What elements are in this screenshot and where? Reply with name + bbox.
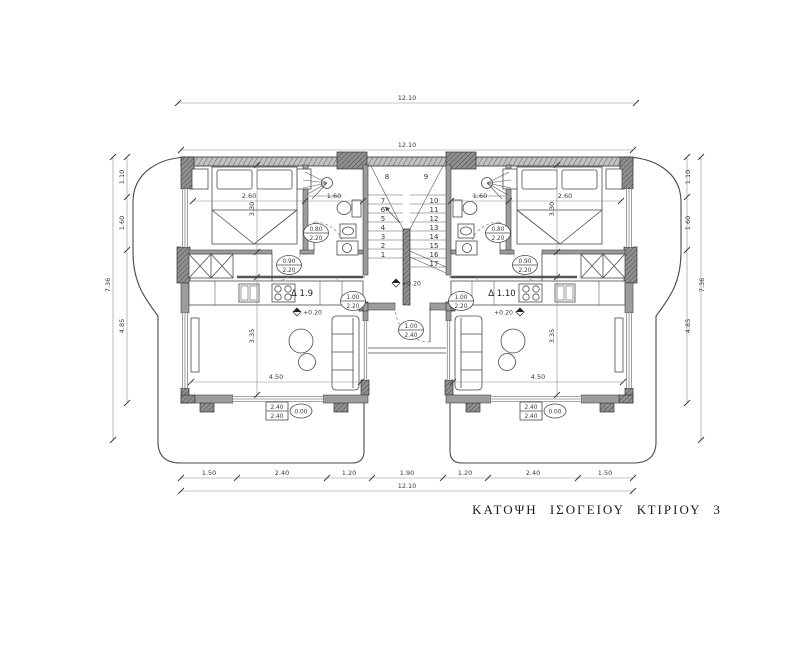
wall <box>500 250 514 254</box>
wall <box>363 165 368 275</box>
dim-bottom-seg: 1.50 <box>202 469 216 477</box>
door-label-height: 2.20 <box>347 304 360 310</box>
window-left-bedroom <box>181 189 189 247</box>
window-left-living <box>181 313 189 388</box>
apartment-label-left: Δ 1.9 <box>291 289 313 299</box>
dim-left-seg: 1.10 <box>118 170 126 184</box>
sofa <box>455 316 482 390</box>
window-right-living <box>625 313 633 388</box>
wall <box>446 165 451 275</box>
wc-tank <box>352 200 361 217</box>
kitchen-sink <box>239 284 259 302</box>
table <box>501 329 525 353</box>
stair-number: 9 <box>424 173 428 181</box>
dim-right-seg: 1.60 <box>684 216 692 230</box>
dim-left-total: 7.36 <box>104 278 112 292</box>
washing-machine <box>337 241 358 255</box>
window-right-bedroom <box>625 189 633 247</box>
dim-bottom-seg: 2.40 <box>526 469 540 477</box>
dim-bottom-seg: 1.20 <box>342 469 356 477</box>
dim-bath-width: 1.60 <box>473 192 487 200</box>
column <box>334 403 348 412</box>
dim-bedroom-width: 2.60 <box>242 192 256 200</box>
stair-number: 10 <box>430 197 439 205</box>
dim-bedroom-depth: 3.30 <box>548 202 556 216</box>
drawing-title: ΚΑΤΟΨΗ ΙΣΟΓΕΙΟΥ ΚΤΙΡΙΟΥ 3 <box>472 502 722 517</box>
dim-right-seg: 4.85 <box>684 319 692 333</box>
window-label-height: 2.40 <box>525 414 538 420</box>
column <box>600 403 614 412</box>
dim-bottom-total: 12.10 <box>398 482 417 490</box>
window-label-level: 0.00 <box>295 410 308 416</box>
table <box>299 354 316 371</box>
door-label-width: 0.80 <box>492 227 505 233</box>
dim-bath-width: 1.60 <box>327 192 341 200</box>
washing-machine <box>456 241 477 255</box>
stair-number: 2 <box>381 242 385 250</box>
window-size-labels: 2.40 2.40 0.00 2.40 2.40 0.00 <box>266 402 566 420</box>
nightstand <box>606 169 622 189</box>
dim-living-width: 4.50 <box>531 373 545 381</box>
door-label-width: 1.00 <box>455 295 468 301</box>
level-marker-right: +0.20 <box>494 308 524 317</box>
door-label-height: 2.20 <box>283 268 296 274</box>
stair-number: 14 <box>430 233 439 241</box>
door-label-entrance: 1.00 2.40 <box>399 321 424 340</box>
window-label-width: 2.40 <box>271 405 284 411</box>
stair-number: 7 <box>381 197 385 205</box>
sofa <box>332 316 359 390</box>
stair-number: 8 <box>385 173 389 181</box>
wall <box>189 250 272 254</box>
pillow <box>217 170 252 189</box>
door-label-bedroom-right: 0.90 2.20 <box>513 256 538 275</box>
dim-living-depth: 3.35 <box>548 329 556 343</box>
level-marker-vestibule: +0.20 <box>392 279 421 288</box>
column <box>466 403 480 412</box>
wardrobe-right <box>581 254 625 278</box>
dim-top-outer: 12.10 <box>398 94 417 102</box>
pillow <box>257 170 292 189</box>
wall <box>446 311 451 321</box>
kitchen-sink <box>555 284 575 302</box>
dim-bottom-seg: 1.20 <box>458 469 472 477</box>
dim-bottom-seg: 1.90 <box>400 469 414 477</box>
kitchen-left <box>189 281 363 305</box>
column <box>200 403 214 412</box>
wall <box>430 303 446 310</box>
door-label-height: 2.20 <box>519 268 532 274</box>
stair-number: 12 <box>430 215 439 223</box>
door-label-height: 2.40 <box>405 333 418 339</box>
stair-number: 11 <box>430 206 439 214</box>
dim-bottom-seg: 2.40 <box>275 469 289 477</box>
window-left-porchside <box>363 321 368 380</box>
door-label-width: 1.00 <box>347 295 360 301</box>
wc-bowl <box>463 202 477 215</box>
wall-block <box>619 395 633 403</box>
door-label-width: 0.80 <box>310 227 323 233</box>
floor-plan-canvas: 1 2 3 4 5 6 7 8 9 10 11 12 13 14 15 16 1… <box>0 0 800 654</box>
dim-left-seg: 1.60 <box>118 216 126 230</box>
stair-number: 5 <box>381 215 385 223</box>
window-label-height: 2.40 <box>271 414 284 420</box>
door-label-height: 2.20 <box>310 236 323 242</box>
pillow <box>562 170 597 189</box>
dim-right-total: 7.36 <box>698 278 706 292</box>
window-right-porchside <box>446 321 451 380</box>
top-wall <box>181 157 633 166</box>
bathroom-right <box>453 172 511 255</box>
dim-top-inner: 12.10 <box>398 141 417 149</box>
door-label-apartment-right: 1.00 2.20 <box>449 292 474 311</box>
table <box>289 329 313 353</box>
table <box>499 354 516 371</box>
pillow <box>522 170 557 189</box>
level-value: +0.20 <box>303 310 322 317</box>
stair-number: 1 <box>381 251 385 259</box>
window-label-level: 0.00 <box>549 410 562 416</box>
door-label-bath-left: 0.80 2.20 <box>304 224 329 243</box>
stair-number: 13 <box>430 224 439 232</box>
door-label-height: 2.20 <box>492 236 505 242</box>
apartment-label-right: Δ 1.10 <box>488 289 515 299</box>
stair-spine-wall <box>403 229 410 305</box>
stair-number: 17 <box>430 260 439 268</box>
nightstand <box>503 169 517 189</box>
dim-living-width: 4.50 <box>269 373 283 381</box>
wall <box>446 395 491 403</box>
wall-block <box>445 380 453 395</box>
dim-bedroom-width: 2.60 <box>558 192 572 200</box>
stair-number: 3 <box>381 233 385 241</box>
dim-left-seg: 4.85 <box>118 319 126 333</box>
wall <box>300 250 314 254</box>
door-label-width: 1.00 <box>405 324 418 330</box>
wall-block <box>337 152 367 169</box>
nightstand <box>192 169 208 189</box>
kitchen-right <box>451 281 625 305</box>
nightstand <box>297 169 311 189</box>
window-label-width: 2.40 <box>525 405 538 411</box>
level-marker-left: +0.20 <box>293 308 322 317</box>
door-label-bedroom-left: 0.90 2.20 <box>277 256 302 275</box>
wall <box>323 395 368 403</box>
dim-bedroom-depth: 3.30 <box>248 202 256 216</box>
door-label-width: 0.90 <box>519 259 532 265</box>
wall <box>363 311 368 321</box>
wc-tank <box>453 200 462 217</box>
wall <box>581 395 619 403</box>
wall <box>542 250 625 254</box>
stair-number: 16 <box>430 251 439 259</box>
level-value: +0.20 <box>402 281 421 288</box>
wall-block <box>361 380 369 395</box>
door-label-width: 0.90 <box>283 259 296 265</box>
stair-number: 6 <box>381 206 386 214</box>
wall-block <box>624 247 637 283</box>
stair-direction-arrow <box>385 207 400 223</box>
bathroom-left <box>303 172 361 255</box>
dim-bottom-seg: 1.50 <box>598 469 612 477</box>
stair-number: 15 <box>430 242 439 250</box>
tv-bench <box>191 318 199 372</box>
wall-block <box>181 395 195 403</box>
level-value: +0.20 <box>494 310 513 317</box>
stair-number: 4 <box>381 224 386 232</box>
door-label-apartment-left: 1.00 2.20 <box>341 292 366 311</box>
wall-block <box>177 247 190 283</box>
wall <box>181 283 189 313</box>
door-label-height: 2.20 <box>455 304 468 310</box>
wall <box>368 303 395 310</box>
wall <box>195 395 233 403</box>
wall <box>625 283 633 313</box>
tv-bench <box>615 318 623 372</box>
window-label-right: 2.40 2.40 0.00 <box>520 402 566 420</box>
floor-plan-page: 1 2 3 4 5 6 7 8 9 10 11 12 13 14 15 16 1… <box>0 0 800 654</box>
wc-bowl <box>337 202 351 215</box>
dim-living-depth: 3.35 <box>248 329 256 343</box>
door-label-bath-right: 0.80 2.20 <box>486 224 511 243</box>
window-label-left: 2.40 2.40 0.00 <box>266 402 312 420</box>
dim-right-seg: 1.10 <box>684 170 692 184</box>
wardrobe-left <box>189 254 233 278</box>
